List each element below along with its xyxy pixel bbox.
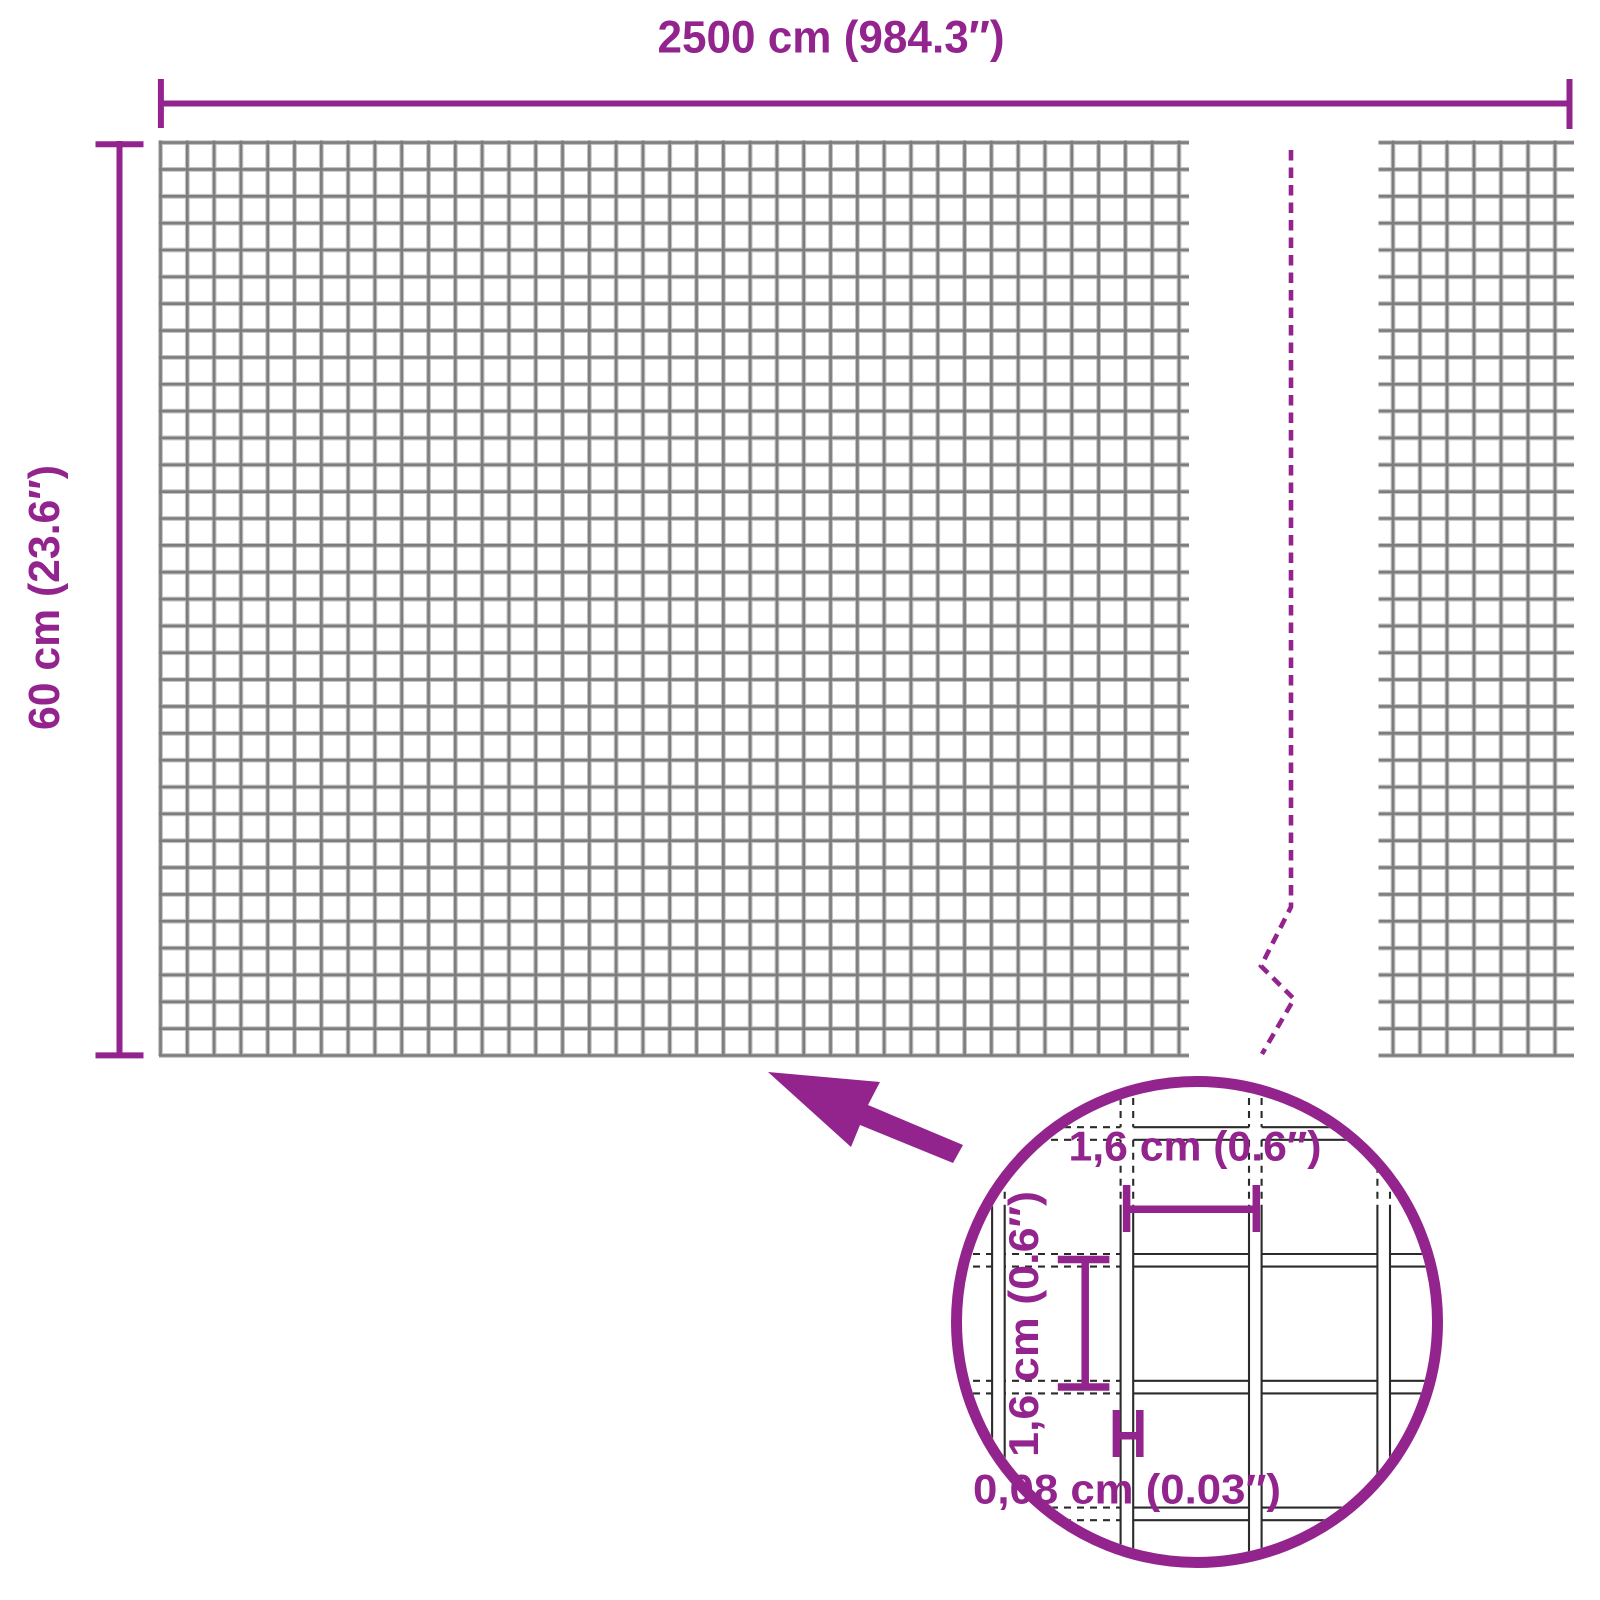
svg-text:1,6 cm (0.6″): 1,6 cm (0.6″) bbox=[1069, 1123, 1322, 1170]
svg-text:0,08 cm (0.03″): 0,08 cm (0.03″) bbox=[973, 1466, 1281, 1513]
svg-text:1,6 cm (0.6″): 1,6 cm (0.6″) bbox=[1000, 1191, 1047, 1457]
svg-text:60 cm (23.6″): 60 cm (23.6″) bbox=[20, 465, 69, 730]
svg-text:2500 cm (984.3″): 2500 cm (984.3″) bbox=[658, 12, 1005, 63]
